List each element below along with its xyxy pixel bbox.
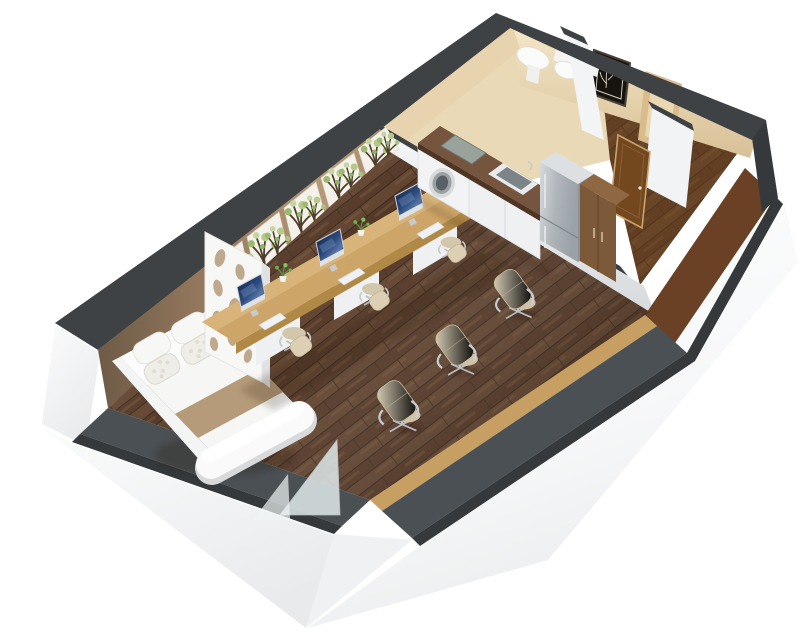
floorplan-svg	[0, 0, 800, 639]
floorplan-render	[0, 0, 800, 639]
